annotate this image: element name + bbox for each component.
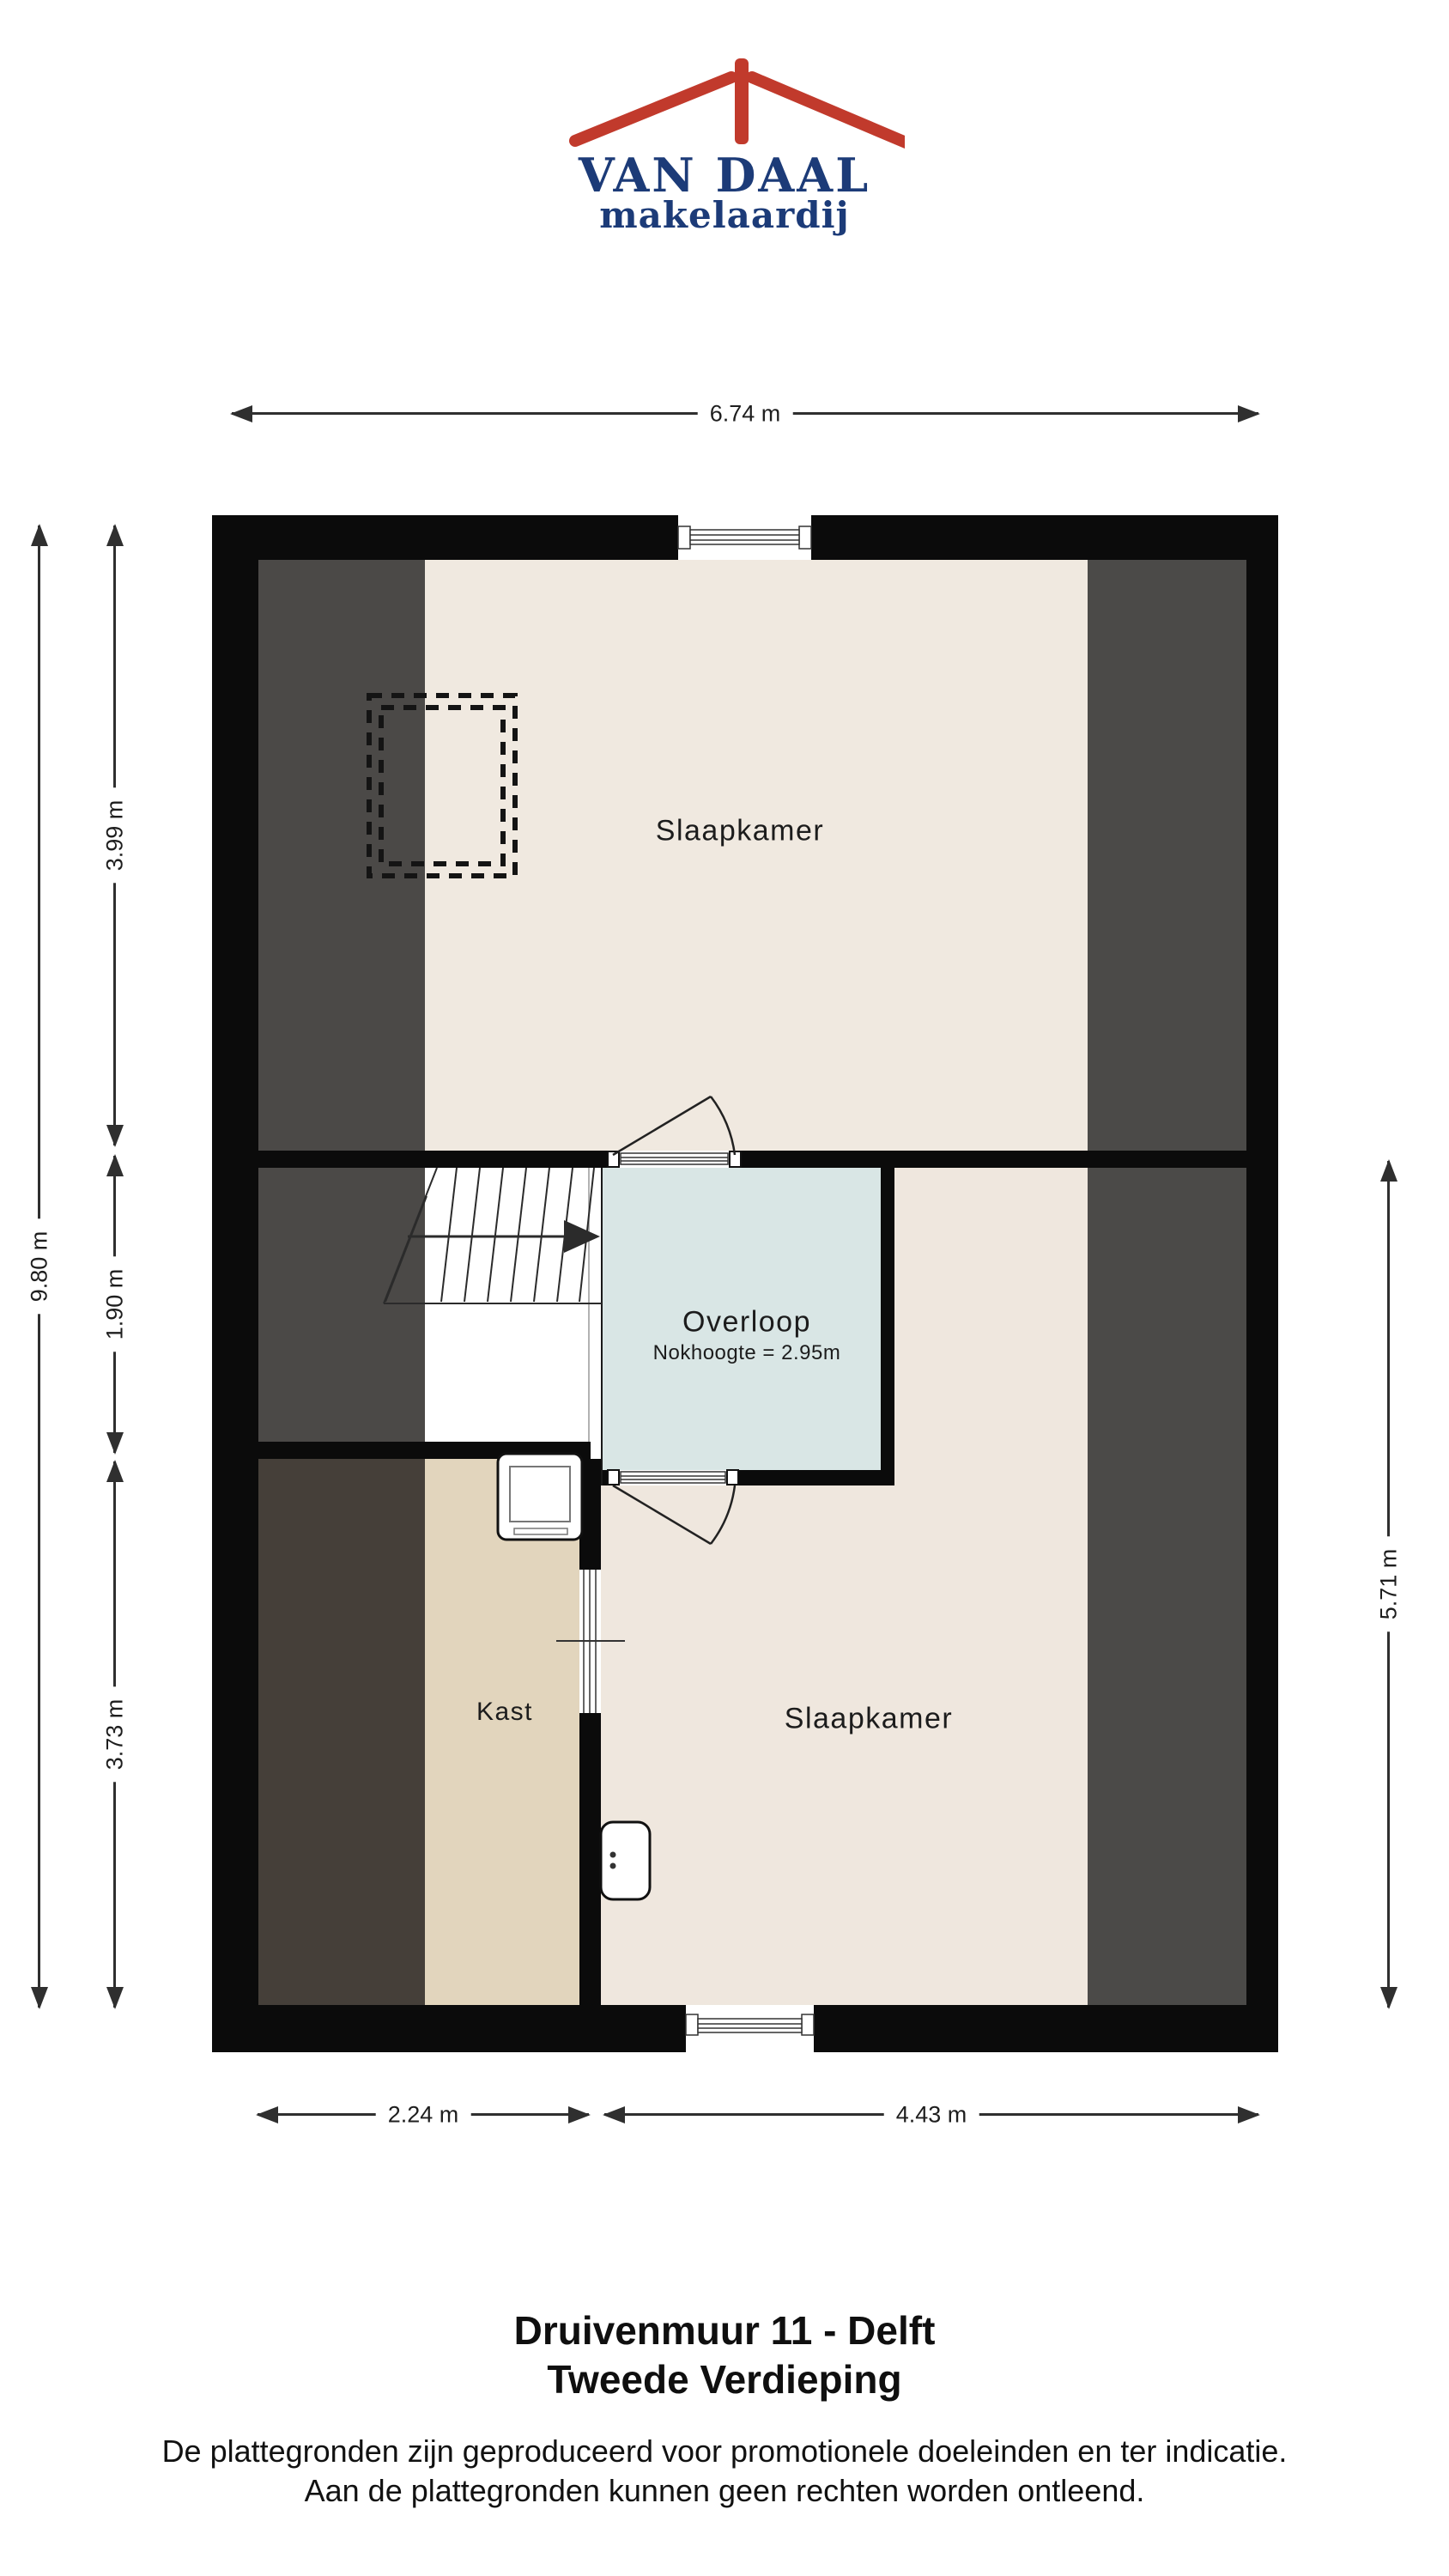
footer-title-block: Druivenmuur 11 - Delft Tweede Verdieping bbox=[0, 2306, 1449, 2404]
address-title: Druivenmuur 11 - Delft bbox=[0, 2306, 1449, 2355]
door-opening-top bbox=[608, 1151, 741, 1168]
room-label-overloop: Overloop bbox=[682, 1306, 811, 1340]
dim-left-bottom: 3.73 m bbox=[113, 1461, 116, 2008]
floor-slaapkamer-top bbox=[425, 560, 1088, 1151]
dim-total-width-label: 6.74 m bbox=[698, 400, 793, 427]
appliance bbox=[498, 1454, 582, 1540]
dim-total-height-label: 9.80 m bbox=[26, 1219, 52, 1315]
footer-disclaimer: De plattegronden zijn geproduceerd voor … bbox=[0, 2432, 1449, 2511]
disclaimer-line-2: Aan de plattegronden kunnen geen rechten… bbox=[0, 2471, 1449, 2511]
agency-logo: VAN DAAL makelaardij bbox=[544, 48, 905, 234]
floor-subtitle: Tweede Verdieping bbox=[0, 2355, 1449, 2404]
dim-left-top-label: 3.99 m bbox=[101, 788, 128, 884]
dim-right-label: 5.71 m bbox=[1375, 1537, 1402, 1632]
dim-bottom-right-label: 4.43 m bbox=[884, 2101, 979, 2128]
room-label-slaapkamer-bottom: Slaapkamer bbox=[785, 1703, 953, 1736]
dim-left-bottom-label: 3.73 m bbox=[101, 1687, 128, 1783]
dim-bottom-right: 4.43 m bbox=[604, 2113, 1258, 2116]
dim-total-width: 6.74 m bbox=[232, 412, 1258, 415]
floorplan-drawing bbox=[212, 515, 1278, 2052]
door-opening-bottom bbox=[608, 1470, 738, 1485]
window bbox=[686, 2005, 814, 2052]
dim-total-height: 9.80 m bbox=[38, 526, 40, 2008]
dim-left-middle: 1.90 m bbox=[113, 1156, 116, 1453]
dim-right: 5.71 m bbox=[1387, 1161, 1390, 2008]
room-label-overloop-note: Nokhoogte = 2.95m bbox=[653, 1341, 841, 1365]
room-label-slaapkamer-top: Slaapkamer bbox=[656, 815, 824, 848]
disclaimer-line-1: De plattegronden zijn geproduceerd voor … bbox=[0, 2432, 1449, 2471]
floorplan-page: { "brand": { "name_top": "VAN DAAL", "na… bbox=[0, 0, 1449, 2576]
dim-left-top: 3.99 m bbox=[113, 526, 116, 1145]
dim-bottom-left-label: 2.24 m bbox=[376, 2101, 471, 2128]
roof-icon bbox=[544, 48, 905, 151]
dim-bottom-left: 2.24 m bbox=[258, 2113, 589, 2116]
logo-name: VAN DAAL bbox=[544, 150, 905, 200]
dim-left-middle-label: 1.90 m bbox=[101, 1257, 128, 1352]
sink-fixture bbox=[601, 1822, 650, 1899]
window bbox=[678, 515, 811, 560]
room-label-kast: Kast bbox=[476, 1698, 533, 1727]
